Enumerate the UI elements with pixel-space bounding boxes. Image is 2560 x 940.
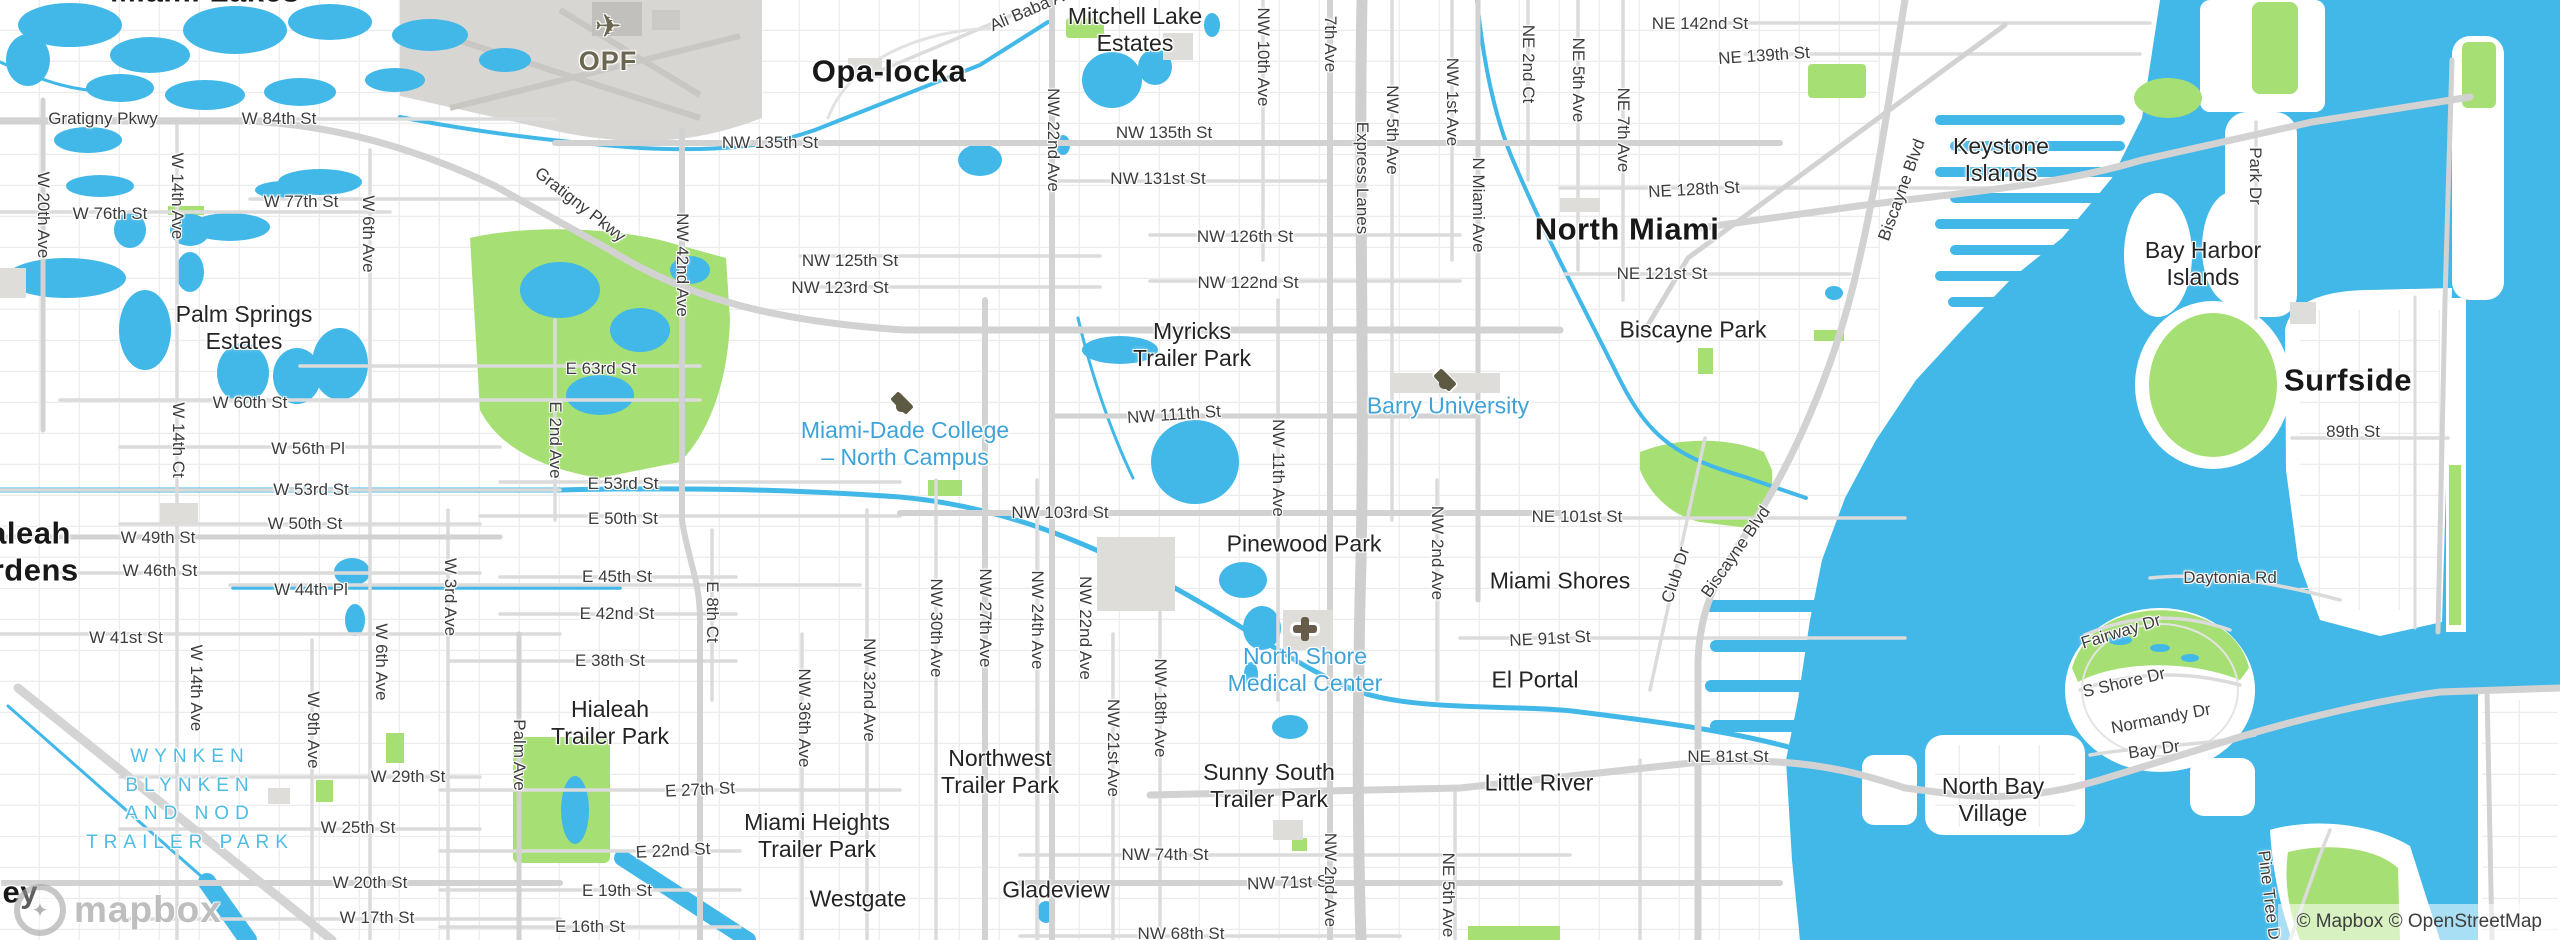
street-label-nw-74th-st: NW 74th St bbox=[1122, 845, 1209, 865]
street-label-n-miami-ave: N Miami Ave bbox=[1468, 157, 1488, 252]
street-label-nw-32nd-ave: NW 32nd Ave bbox=[859, 638, 879, 742]
street-label-w-60th-st: W 60th St bbox=[213, 393, 288, 413]
street-label-nw-135th-st: NW 135th St bbox=[722, 133, 818, 153]
street-label-e-53rd-st: E 53rd St bbox=[588, 474, 659, 494]
city-label-north-miami: North Miami bbox=[1535, 212, 1720, 249]
neighborhood-label-wynken-blynken-and-nod-trailer-park: WYNKEN BLYNKEN AND NOD TRAILER PARK bbox=[86, 743, 294, 857]
neighborhood-label-hialeah-trailer-park: Hialeah Trailer Park bbox=[551, 696, 669, 750]
mapbox-logo-wordmark: mapbox bbox=[74, 889, 222, 931]
street-label-w-20th-st: W 20th St bbox=[333, 873, 408, 893]
street-label-nw-123rd-st: NW 123rd St bbox=[791, 278, 888, 298]
street-label-nw-22nd-ave: NW 22nd Ave bbox=[1075, 576, 1095, 680]
street-label-w-76th-st: W 76th St bbox=[73, 204, 148, 224]
poi-label-north-shore-medical-center: North Shore Medical Center bbox=[1228, 643, 1383, 697]
street-label-w-49th-st: W 49th St bbox=[121, 528, 196, 548]
street-label-w-14th-ct: W 14th Ct bbox=[168, 402, 188, 478]
street-label-nw-135th-st: NW 135th St bbox=[1116, 123, 1212, 143]
neighborhood-label-keystone-islands: Keystone Islands bbox=[1953, 133, 2049, 187]
street-label-bay-dr: Bay Dr bbox=[2127, 736, 2181, 763]
street-label-e-8th-ct: E 8th Ct bbox=[702, 581, 722, 642]
street-label-w-3rd-ave: W 3rd Ave bbox=[440, 558, 460, 636]
neighborhood-label-little-river: Little River bbox=[1485, 769, 1594, 796]
street-label-w-20th-ave: W 20th Ave bbox=[33, 172, 53, 259]
street-label-ne-128th-st: NE 128th St bbox=[1648, 178, 1741, 203]
city-label-miami-lakes: Miami Lakes bbox=[110, 0, 300, 10]
college-icon bbox=[887, 390, 917, 416]
street-label-w-6th-ave: W 6th Ave bbox=[358, 195, 378, 272]
street-label-biscayne-blvd: Biscayne Blvd bbox=[1874, 136, 1929, 243]
neighborhood-label-mitchell-lake-estates: Mitchell Lake Estates bbox=[1068, 3, 1202, 57]
city-label-hialeah-gardens: Hialeah Gardens bbox=[0, 515, 79, 588]
attribution[interactable]: © Mapbox © OpenStreetMap bbox=[2278, 904, 2560, 940]
street-label-w-25th-st: W 25th St bbox=[321, 818, 396, 838]
street-label-ne-142nd-st: NE 142nd St bbox=[1652, 14, 1748, 34]
street-label-nw-11th-ave: NW 11th Ave bbox=[1268, 419, 1288, 517]
city-label-surfside: Surfside bbox=[2284, 363, 2412, 400]
neighborhood-label-sunny-south-trailer-park: Sunny South Trailer Park bbox=[1203, 759, 1335, 813]
street-label-ne-81st-st: NE 81st St bbox=[1687, 747, 1768, 767]
street-label-e-22nd-st: E 22nd St bbox=[635, 839, 711, 863]
street-label-w-56th-pl: W 56th Pl bbox=[271, 439, 345, 459]
street-label-ne-91st-st: NE 91st St bbox=[1509, 627, 1591, 651]
street-label-normandy-dr: Normandy Dr bbox=[2109, 700, 2212, 739]
street-label-w-14th-ave: W 14th Ave bbox=[167, 153, 187, 240]
street-label-nw-2nd-ave: NW 2nd Ave bbox=[1427, 506, 1447, 600]
street-label-ne-121st-st: NE 121st St bbox=[1617, 264, 1708, 284]
street-label-biscayne-blvd: Biscayne Blvd bbox=[1697, 503, 1775, 602]
neighborhood-label-myricks-trailer-park: Myricks Trailer Park bbox=[1133, 318, 1251, 372]
poi-label-miami-dade-college-north-campus: Miami-Dade College – North Campus bbox=[801, 417, 1009, 471]
college-icon bbox=[1430, 367, 1460, 393]
street-label-89th-st: 89th St bbox=[2326, 422, 2380, 442]
street-label-nw-125th-st: NW 125th St bbox=[802, 251, 898, 271]
neighborhood-label-el-portal: El Portal bbox=[1492, 666, 1579, 693]
poi-label-barry-university: Barry University bbox=[1367, 392, 1529, 419]
plane-icon: ✈ bbox=[595, 10, 622, 42]
street-label-ne-7th-ave: NE 7th Ave bbox=[1613, 88, 1633, 173]
street-label-ne-101st-st: NE 101st St bbox=[1532, 507, 1623, 527]
street-label-w-50th-st: W 50th St bbox=[268, 514, 343, 534]
hospital-icon bbox=[1291, 615, 1319, 643]
street-label-e-16th-st: E 16th St bbox=[555, 917, 625, 937]
street-label-express-lanes: Express Lanes bbox=[1352, 122, 1372, 234]
neighborhood-label-northwest-trailer-park: Northwest Trailer Park bbox=[941, 745, 1059, 799]
street-label-palm-ave: Palm Ave bbox=[509, 719, 529, 791]
street-label-nw-131st-st: NW 131st St bbox=[1110, 169, 1205, 189]
street-label-nw-71st-st: NW 71st St bbox=[1247, 871, 1334, 894]
street-label-w-46th-st: W 46th St bbox=[123, 561, 198, 581]
street-label-ne-5th-ave: NE 5th Ave bbox=[1568, 38, 1588, 123]
street-label-gratigny-pkwy: Gratigny Pkwy bbox=[48, 109, 158, 129]
street-label-w-14th-ave: W 14th Ave bbox=[186, 645, 206, 732]
street-label-w-6th-ave: W 6th Ave bbox=[371, 623, 391, 700]
neighborhood-label-miami-shores: Miami Shores bbox=[1490, 567, 1631, 594]
street-label-nw-2nd-ave: NW 2nd Ave bbox=[1320, 833, 1340, 927]
street-label-w-44th-pl: W 44th Pl bbox=[274, 580, 348, 600]
airport-label-opf: OPF bbox=[579, 46, 638, 78]
street-label-nw-10th-ave: NW 10th Ave bbox=[1253, 8, 1273, 107]
street-label-w-77th-st: W 77th St bbox=[264, 192, 339, 212]
street-label-7th-ave: 7th Ave bbox=[1320, 16, 1340, 72]
street-label-nw-24th-ave: NW 24th Ave bbox=[1027, 571, 1047, 670]
street-label-nw-27th-ave: NW 27th Ave bbox=[975, 569, 995, 668]
street-label-nw-122nd-st: NW 122nd St bbox=[1197, 273, 1298, 293]
street-label-gratigny-pkwy: Gratigny Pkwy bbox=[531, 163, 630, 246]
street-label-nw-126th-st: NW 126th St bbox=[1197, 227, 1293, 247]
street-label-ne-5th-ave: NE 5th Ave bbox=[1438, 853, 1458, 938]
neighborhood-label-westgate: Westgate bbox=[810, 885, 907, 912]
street-label-nw-1st-ave: NW 1st Ave bbox=[1442, 58, 1462, 147]
neighborhood-label-gladeview: Gladeview bbox=[1002, 876, 1109, 903]
street-label-nw-111th-st: NW 111th St bbox=[1126, 402, 1221, 429]
street-label-w-17th-st: W 17th St bbox=[340, 908, 415, 928]
street-label-e-38th-st: E 38th St bbox=[575, 651, 645, 671]
neighborhood-label-bay-harbor-islands: Bay Harbor Islands bbox=[2145, 237, 2261, 291]
street-label-e-2nd-ave: E 2nd Ave bbox=[545, 401, 565, 478]
street-label-club-dr: Club Dr bbox=[1658, 545, 1695, 606]
neighborhood-label-palm-springs-estates: Palm Springs Estates bbox=[176, 301, 313, 355]
street-label-w-41st-st: W 41st St bbox=[89, 628, 163, 648]
map-canvas[interactable]: Miami LakesOpa-lockaNorth MiamiSurfsideH… bbox=[0, 0, 2560, 940]
street-label-fairway-dr: Fairway Dr bbox=[2079, 610, 2163, 653]
neighborhood-label-miami-heights-trailer-park: Miami Heights Trailer Park bbox=[744, 809, 890, 863]
street-label-w-9th-ave: W 9th Ave bbox=[303, 691, 323, 768]
street-label-nw-42nd-ave: NW 42nd Ave bbox=[672, 213, 692, 317]
street-label-nw-18th-ave: NW 18th Ave bbox=[1150, 659, 1170, 758]
street-label-ne-139th-st: NE 139th St bbox=[1718, 43, 1811, 69]
street-label-nw-5th-ave: NW 5th Ave bbox=[1382, 85, 1402, 174]
city-label-opa-locka: Opa-locka bbox=[812, 54, 966, 91]
street-label-nw-30th-ave: NW 30th Ave bbox=[926, 579, 946, 678]
street-label-park-dr: Park Dr bbox=[2245, 147, 2265, 205]
street-label-w-84th-st: W 84th St bbox=[242, 109, 317, 129]
street-label-s-shore-dr: S Shore Dr bbox=[2081, 664, 2167, 702]
street-label-nw-22nd-ave: NW 22nd Ave bbox=[1043, 88, 1063, 192]
mapbox-logo[interactable]: ✦ mapbox bbox=[14, 884, 222, 936]
street-label-w-29th-st: W 29th St bbox=[371, 767, 446, 787]
street-label-e-19th-st: E 19th St bbox=[582, 881, 652, 901]
street-label-ne-2nd-ct: NE 2nd Ct bbox=[1518, 25, 1538, 103]
street-label-e-42nd-st: E 42nd St bbox=[580, 604, 655, 624]
mapbox-logo-icon: ✦ bbox=[14, 884, 66, 936]
street-label-e-50th-st: E 50th St bbox=[588, 509, 658, 529]
street-label-nw-36th-ave: NW 36th Ave bbox=[794, 669, 814, 768]
street-label-nw-21st-ave: NW 21st Ave bbox=[1103, 699, 1123, 797]
neighborhood-label-north-bay-village: North Bay Village bbox=[1942, 773, 2044, 827]
street-label-e-45th-st: E 45th St bbox=[582, 567, 652, 587]
street-label-daytonia-rd: Daytonia Rd bbox=[2183, 568, 2277, 588]
street-label-e-63rd-st: E 63rd St bbox=[566, 359, 637, 379]
street-label-w-53rd-st: W 53rd St bbox=[273, 480, 349, 500]
street-label-nw-68th-st: NW 68th St bbox=[1138, 924, 1225, 940]
neighborhood-label-biscayne-park: Biscayne Park bbox=[1619, 316, 1766, 343]
map-labels-layer: Miami LakesOpa-lockaNorth MiamiSurfsideH… bbox=[0, 0, 2560, 940]
street-label-e-27th-st: E 27th St bbox=[665, 778, 736, 802]
neighborhood-label-pinewood-park: Pinewood Park bbox=[1227, 530, 1382, 557]
street-label-ali-baba-ave: Ali Baba Ave bbox=[987, 0, 1083, 36]
street-label-nw-103rd-st: NW 103rd St bbox=[1011, 503, 1108, 523]
